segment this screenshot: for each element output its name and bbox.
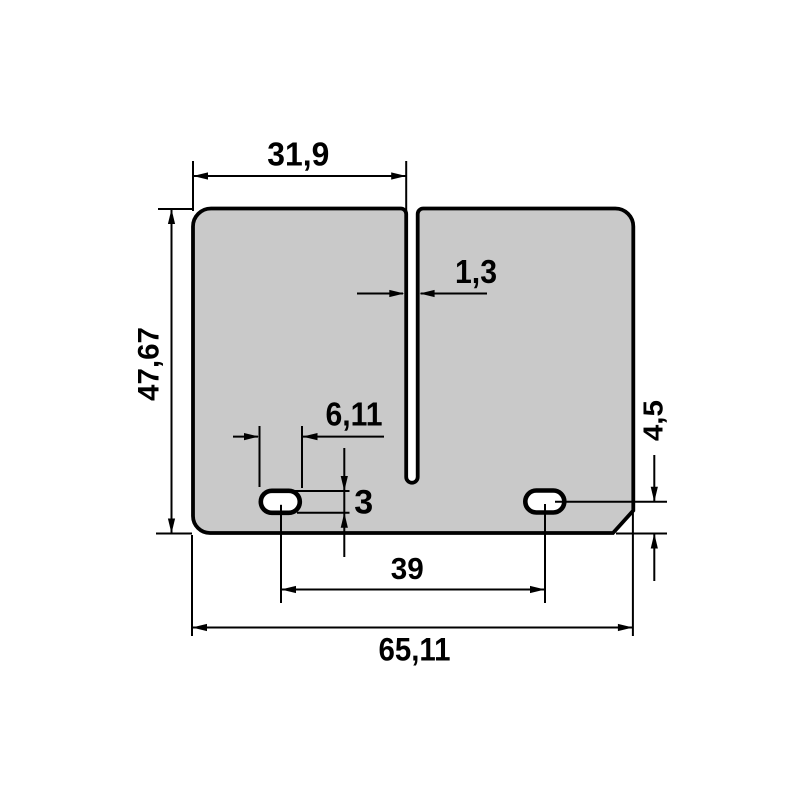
svg-text:65,11: 65,11 <box>379 631 451 667</box>
svg-text:47,67: 47,67 <box>133 327 166 401</box>
svg-text:1,3: 1,3 <box>455 253 497 290</box>
svg-text:31,9: 31,9 <box>267 136 329 173</box>
svg-text:4,5: 4,5 <box>638 400 669 441</box>
svg-text:6,11: 6,11 <box>326 396 383 433</box>
svg-text:39: 39 <box>391 551 424 586</box>
svg-text:3: 3 <box>354 484 373 522</box>
